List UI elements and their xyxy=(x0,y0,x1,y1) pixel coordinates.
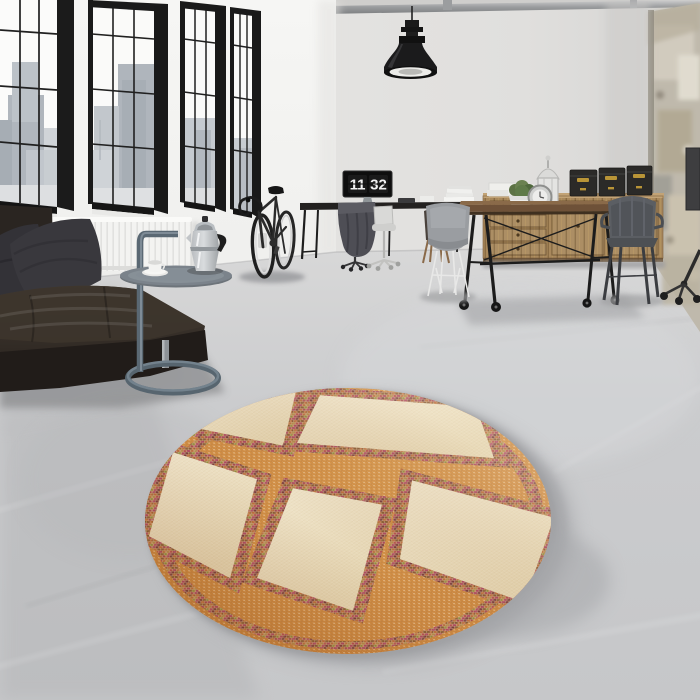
svg-text:11: 11 xyxy=(350,177,366,194)
svg-text:32: 32 xyxy=(370,177,387,194)
